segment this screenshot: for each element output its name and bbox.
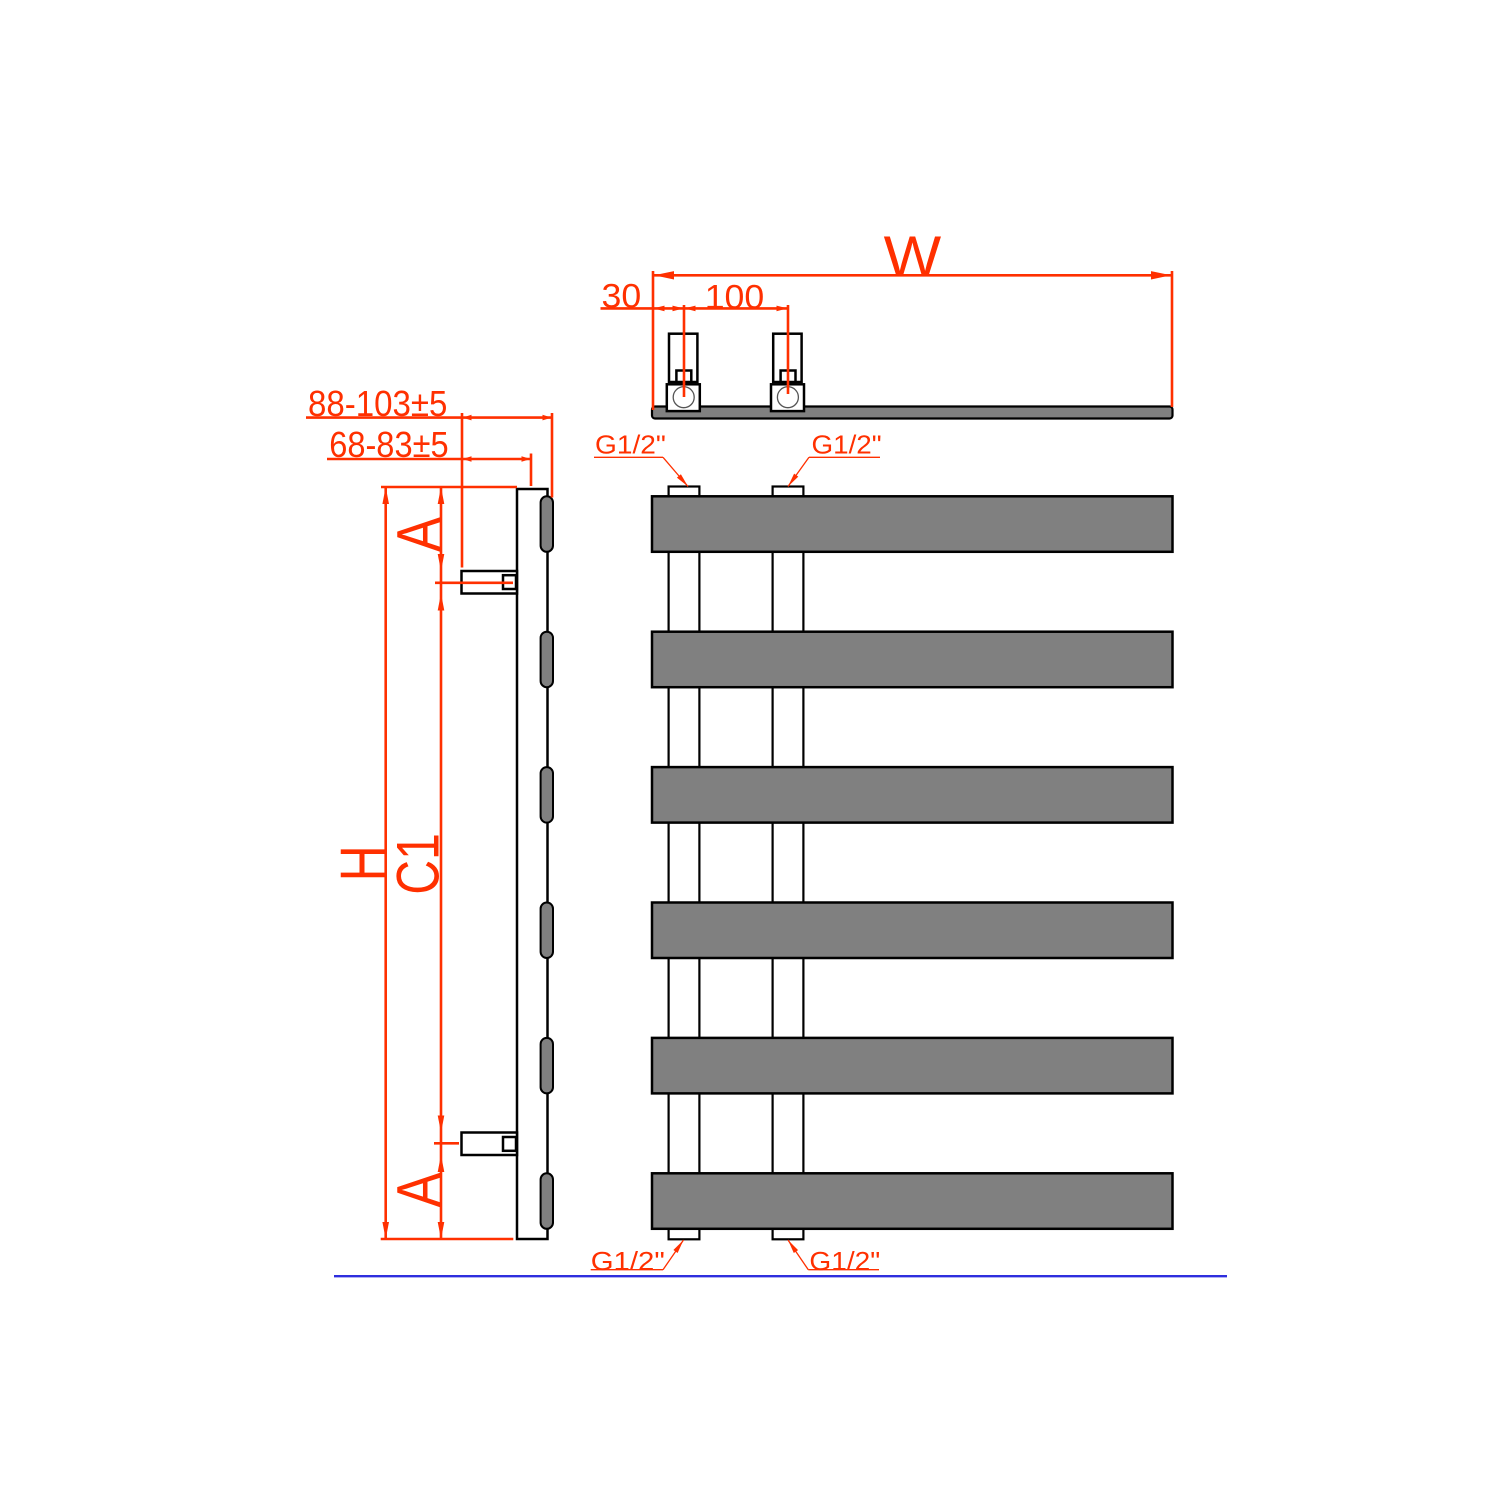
svg-text:W: W [884,224,942,288]
svg-text:G1/2": G1/2" [591,1246,665,1275]
svg-text:C1: C1 [384,833,451,894]
svg-text:G1/2": G1/2" [812,430,882,459]
svg-text:A: A [385,1172,454,1207]
svg-text:68-83±5: 68-83±5 [329,426,448,466]
svg-text:100: 100 [705,278,765,316]
svg-text:A: A [385,516,454,551]
svg-text:G1/2": G1/2" [809,1247,880,1276]
svg-text:30: 30 [602,277,642,315]
svg-text:G1/2": G1/2" [595,430,666,459]
svg-text:88-103±5: 88-103±5 [308,385,447,425]
